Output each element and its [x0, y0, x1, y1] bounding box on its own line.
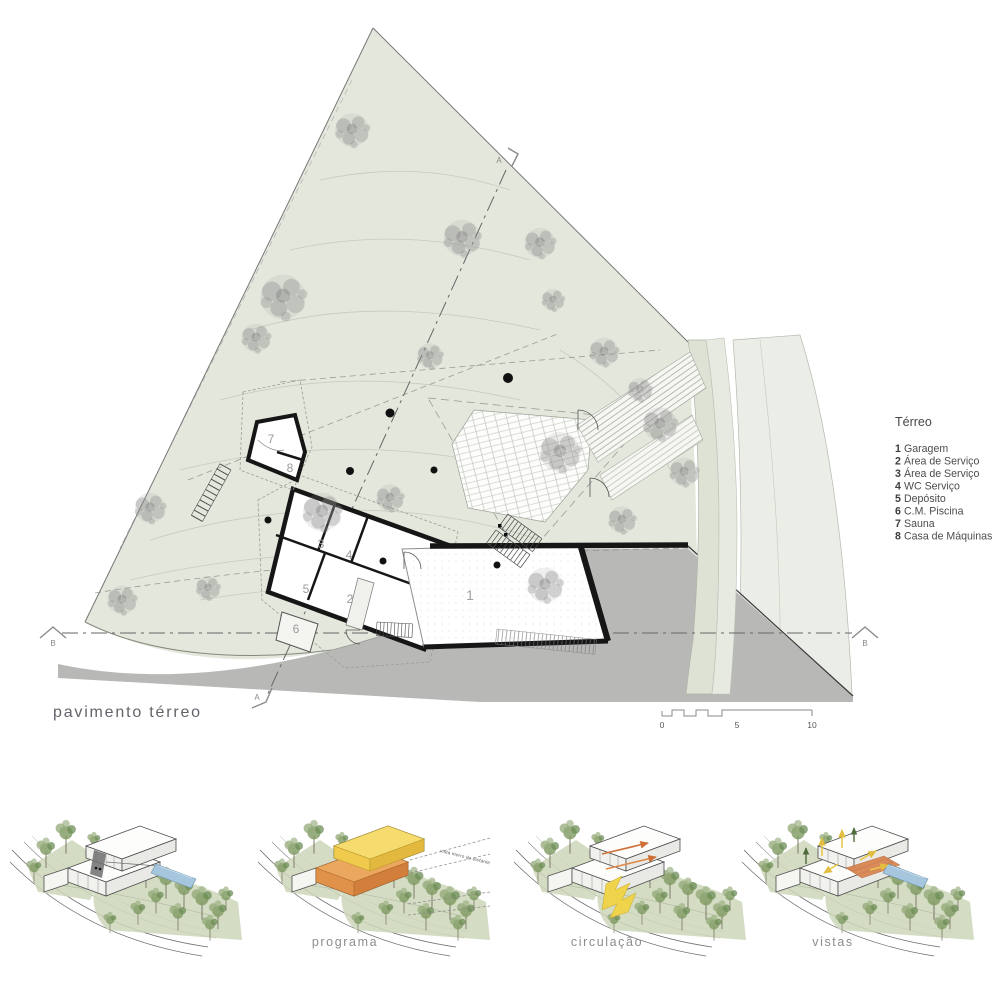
diagram-label-vistas: vistas: [812, 935, 854, 949]
legend-item-num: 7: [895, 518, 901, 530]
legend-item-label: Área de Serviço: [904, 467, 979, 480]
svg-text:5Depósito: 5Depósito: [895, 493, 946, 505]
plan-caption: pavimento térreo: [53, 704, 202, 721]
svg-text:A: A: [496, 156, 502, 165]
site-plan: 1 2 3 4 5 6 7 8 A A B B: [40, 28, 992, 730]
svg-text:B: B: [50, 639, 55, 648]
legend-item-label: Sauna: [904, 518, 935, 530]
svg-text:1Garagem: 1Garagem: [895, 443, 948, 455]
scale-tick-10: 10: [807, 720, 817, 730]
diagram-labels: programa circulação vistas: [312, 935, 854, 949]
room-label-8: 8: [287, 461, 294, 475]
legend-item-label: Depósito: [904, 493, 946, 505]
scale-tick-0: 0: [660, 720, 665, 730]
diagram-label-programa: programa: [312, 935, 378, 949]
architectural-plan-sheet: 1 2 3 4 5 6 7 8 A A B B: [0, 0, 1000, 985]
legend-item-label: Área de Serviço: [904, 455, 979, 468]
legend-item-num: 1: [895, 443, 901, 455]
legend: Térreo 1Garagem 2Área de Serviço 3Área d…: [895, 415, 992, 543]
svg-text:A: A: [254, 693, 260, 702]
svg-text:B: B: [862, 639, 867, 648]
legend-item-num: 2: [895, 456, 901, 468]
room-label-5: 5: [303, 582, 310, 596]
room-label-7: 7: [268, 432, 275, 446]
legend-item-num: 8: [895, 531, 901, 543]
room-label-6: 6: [293, 622, 300, 636]
legend-item-label: Garagem: [904, 443, 948, 455]
diagram-label-circulacao: circulação: [571, 935, 643, 949]
section-marker-b-left: B: [40, 627, 66, 648]
legend-item-num: 3: [895, 468, 901, 480]
scale-bar: 0 5 10: [660, 710, 817, 730]
diagram-massing: [10, 820, 242, 956]
diagram-annotation: vista morro do elefante: [440, 848, 491, 865]
svg-text:2Área de Serviço: 2Área de Serviço: [895, 455, 979, 468]
svg-text:4WC Serviço: 4WC Serviço: [895, 481, 960, 493]
legend-item-num: 5: [895, 493, 901, 505]
legend-item-label: Casa de Máquinas: [904, 531, 992, 543]
site-plan-drawing: 1 2 3 4 5 6 7 8 A A B B: [0, 0, 1000, 985]
room-label-1: 1: [466, 587, 474, 603]
legend-item-label: WC Serviço: [904, 481, 960, 493]
legend-title: Térreo: [895, 415, 932, 429]
diagram-vistas: [742, 820, 974, 956]
svg-text:6C.M. Piscina: 6C.M. Piscina: [895, 506, 964, 518]
legend-item-label: C.M. Piscina: [904, 506, 964, 518]
room-label-3: 3: [318, 537, 325, 551]
scale-tick-5: 5: [735, 720, 740, 730]
room-label-2: 2: [347, 592, 354, 606]
room-label-4: 4: [346, 548, 353, 562]
svg-text:3Área de Serviço: 3Área de Serviço: [895, 467, 979, 480]
section-marker-b-right: B: [852, 627, 878, 648]
svg-text:7Sauna: 7Sauna: [895, 518, 935, 530]
svg-text:8Casa de Máquinas: 8Casa de Máquinas: [895, 531, 992, 543]
legend-item-num: 6: [895, 506, 901, 518]
legend-item-num: 4: [895, 481, 901, 493]
